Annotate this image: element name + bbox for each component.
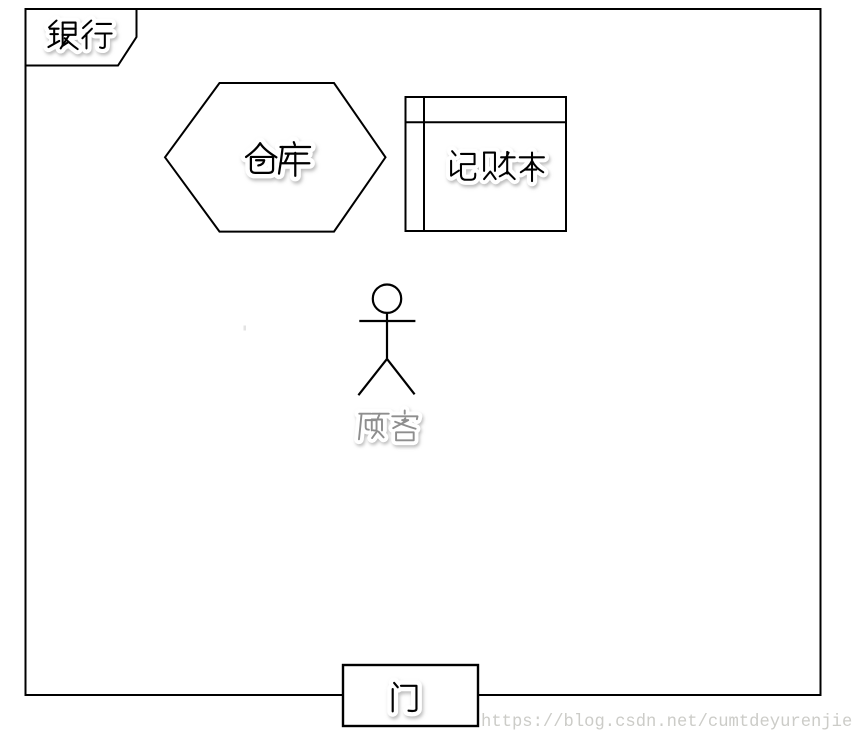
svg-text:https://blog.csdn.net/cumtdeyu: https://blog.csdn.net/cumtdeyurenjie (481, 713, 852, 732)
